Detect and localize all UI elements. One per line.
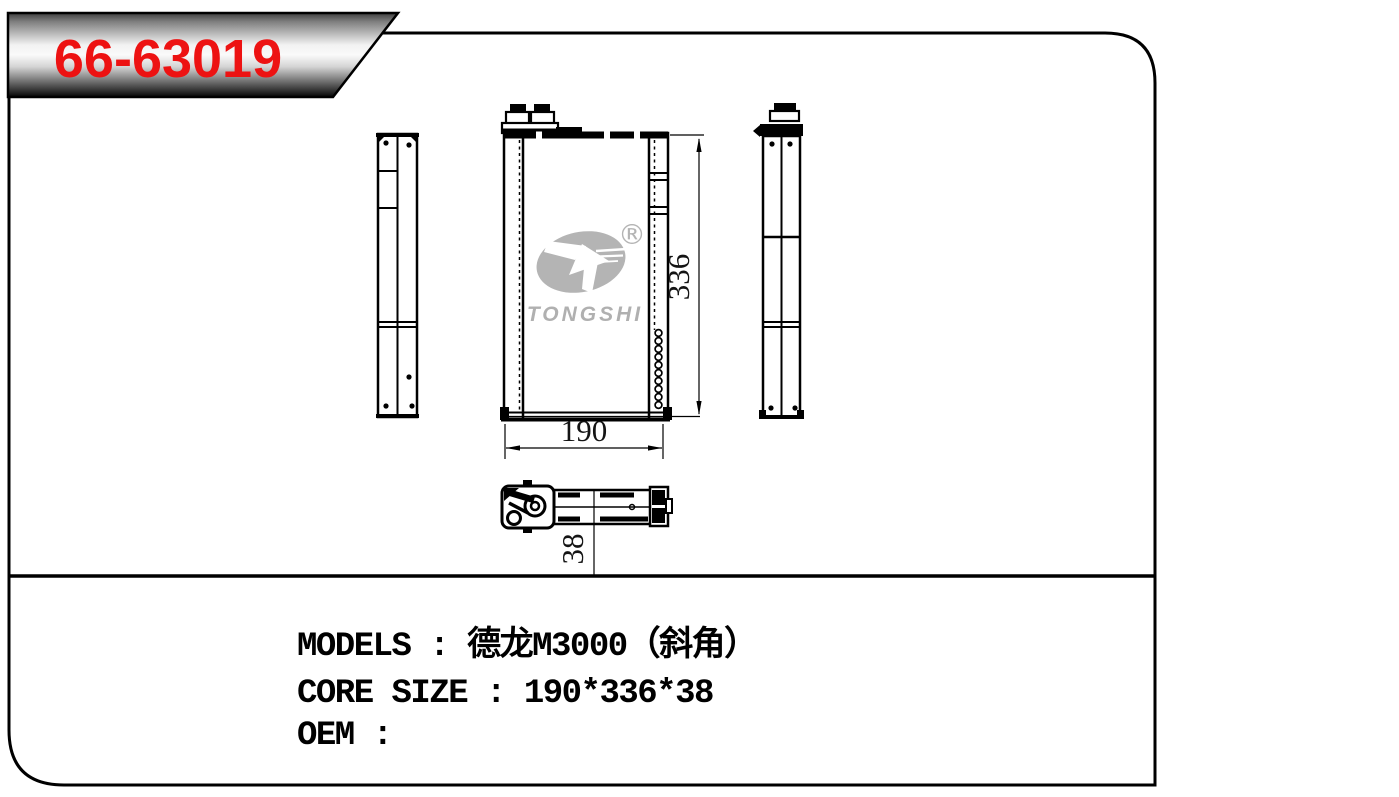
- part-number-badge: 66-63019: [8, 13, 398, 97]
- depth-dimension-text: 38: [555, 534, 590, 565]
- spec-text-block: MODELS : 德龙M3000（斜角） CORE SIZE : 190*336…: [297, 624, 757, 755]
- brand-logo: ® TONGSHI: [527, 218, 646, 326]
- width-dimension-text: 190: [561, 413, 608, 448]
- registered-trademark-text: ®: [618, 218, 646, 251]
- right-side-view: [753, 103, 804, 418]
- height-dimension-text: 336: [661, 254, 696, 301]
- part-number-text: 66-63019: [54, 29, 282, 89]
- page-frame: [9, 33, 1155, 785]
- spec-line-models: MODELS : 德龙M3000（斜角）: [297, 624, 757, 666]
- depth-dimension: 38: [555, 489, 594, 576]
- core-left-tank: [504, 133, 523, 420]
- spec-line-core-size: CORE SIZE : 190*336*38: [297, 675, 713, 713]
- bottom-view: [502, 480, 672, 533]
- catalog-drawing: 66-63019 ® TONGSHI: [0, 0, 1399, 797]
- brand-name-text: TONGSHI: [527, 303, 643, 326]
- inlet-fittings: [502, 104, 570, 134]
- spec-line-oem: OEM :: [297, 717, 392, 755]
- left-side-view: [376, 134, 419, 417]
